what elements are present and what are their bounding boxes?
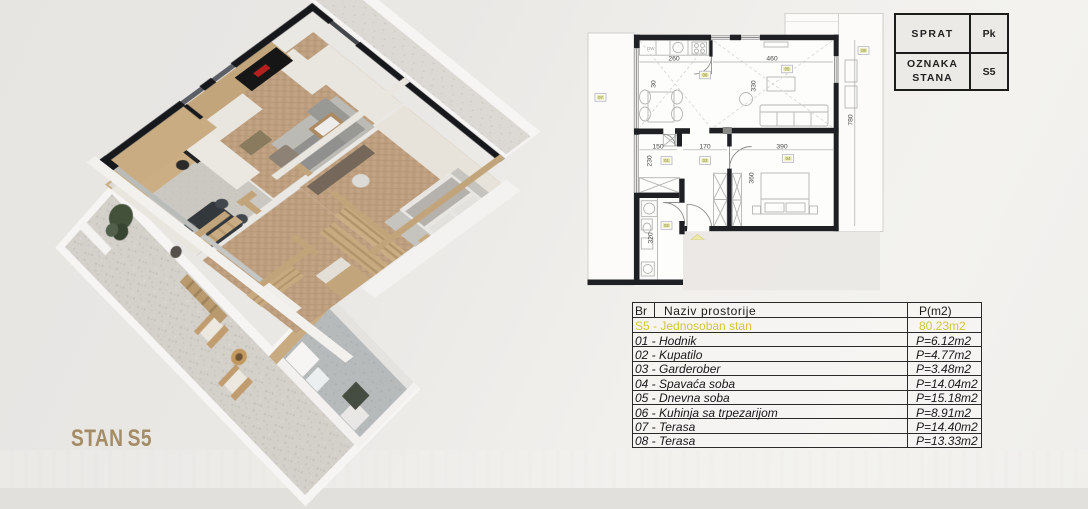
svg-text:01: 01 [664,158,669,163]
svg-text:30: 30 [651,80,658,88]
svg-text:07: 07 [598,95,603,100]
svg-text:170: 170 [699,143,711,150]
svg-text:780: 780 [848,114,855,126]
svg-text:150: 150 [652,143,664,150]
svg-text:230: 230 [647,155,654,167]
svg-text:03: 03 [703,158,708,163]
svg-text:04: 04 [786,156,791,161]
svg-text:330: 330 [751,80,758,92]
svg-text:08: 08 [861,48,866,53]
svg-text:DW: DW [647,46,655,51]
svg-text:05: 05 [785,67,790,72]
svg-text:260: 260 [668,56,680,63]
svg-text:460: 460 [766,56,778,63]
svg-text:390: 390 [776,143,788,150]
svg-text:320: 320 [648,232,655,244]
svg-text:02: 02 [664,223,669,228]
svg-text:360: 360 [749,172,756,184]
svg-text:06: 06 [703,73,708,78]
